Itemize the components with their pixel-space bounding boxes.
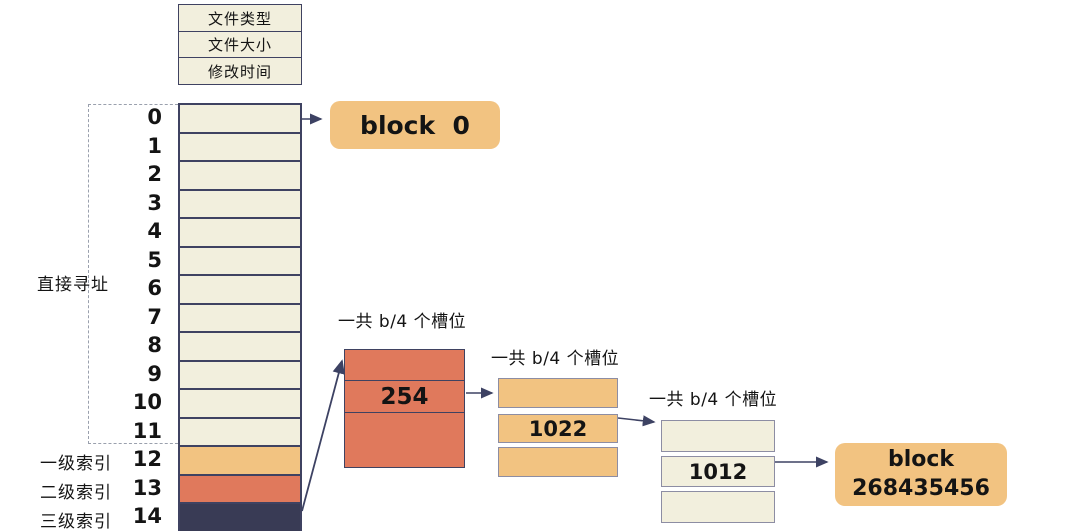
level2-slots-caption: 一共 b/4 个槽位 (491, 344, 619, 369)
final-block-box: block 268435456 (835, 443, 1007, 506)
row-index-7: 7 (110, 303, 162, 332)
row-index-3: 3 (110, 189, 162, 218)
final-block-label-line2: 268435456 (852, 475, 990, 504)
row-index-14: 14 (110, 502, 162, 531)
inode-metadata-stack: 文件类型 文件大小 修改时间 (178, 4, 302, 85)
row-index-8: 8 (110, 331, 162, 360)
row-index-2: 2 (110, 160, 162, 189)
double-indirect-label: 二级索引 (40, 478, 112, 503)
pointer-cell-5 (180, 248, 300, 277)
final-block-label-line1: block (888, 446, 954, 475)
row-index-0: 0 (110, 103, 162, 132)
meta-field-file-size: 文件大小 (178, 31, 302, 59)
pointer-cell-0 (180, 105, 300, 134)
level3-slot-0 (661, 420, 775, 452)
row-index-9: 9 (110, 360, 162, 389)
single-indirect-label: 一级索引 (40, 449, 112, 474)
level2-slot-0 (498, 378, 618, 408)
pointer-cell-3 (180, 191, 300, 220)
row-index-13: 13 (110, 474, 162, 503)
row-index-5: 5 (110, 246, 162, 275)
pointer-cell-14-triple-indirect (180, 504, 300, 531)
pointer-cell-2 (180, 162, 300, 191)
level2-slot-1022: 1022 (498, 414, 618, 443)
level3-slot-1012: 1012 (661, 456, 775, 487)
pointer-cell-13-double-indirect (180, 476, 300, 505)
row-index-12: 12 (110, 445, 162, 474)
pointer-cell-11 (180, 419, 300, 448)
level1-slot-0 (345, 350, 464, 381)
block-0-label: block 0 (360, 111, 470, 140)
level2-slot-2 (498, 447, 618, 477)
arrow-row14-to-level1-table (302, 361, 342, 511)
level1-slot-254: 254 (345, 381, 464, 413)
inode-pointer-table (178, 103, 302, 531)
row-index-10: 10 (110, 388, 162, 417)
level3-slot-2 (661, 491, 775, 523)
row-index-6: 6 (110, 274, 162, 303)
pointer-cell-9 (180, 362, 300, 391)
meta-field-mtime: 修改时间 (178, 57, 302, 85)
arrow-1022-to-level3-table (618, 418, 654, 422)
row-index-4: 4 (110, 217, 162, 246)
inode-diagram: 文件类型 文件大小 修改时间 直接寻址 一级索引 二级索引 三级索引 0 1 2… (0, 0, 1080, 531)
row-index-1: 1 (110, 132, 162, 161)
level1-slot-2 (345, 413, 464, 467)
row-index-11: 11 (110, 417, 162, 446)
pointer-cell-8 (180, 333, 300, 362)
pointer-cell-6 (180, 276, 300, 305)
triple-indirect-label: 三级索引 (40, 507, 112, 531)
block-0-box: block 0 (330, 101, 500, 149)
pointer-cell-10 (180, 390, 300, 419)
pointer-cell-7 (180, 305, 300, 334)
pointer-cell-12-single-indirect (180, 447, 300, 476)
pointer-cell-1 (180, 134, 300, 163)
indirect-table-level1: 254 (344, 349, 465, 468)
level3-slots-caption: 一共 b/4 个槽位 (649, 385, 777, 410)
direct-addressing-label: 直接寻址 (37, 270, 109, 295)
meta-field-file-type: 文件类型 (178, 4, 302, 32)
pointer-cell-4 (180, 219, 300, 248)
level1-slots-caption: 一共 b/4 个槽位 (338, 307, 466, 332)
